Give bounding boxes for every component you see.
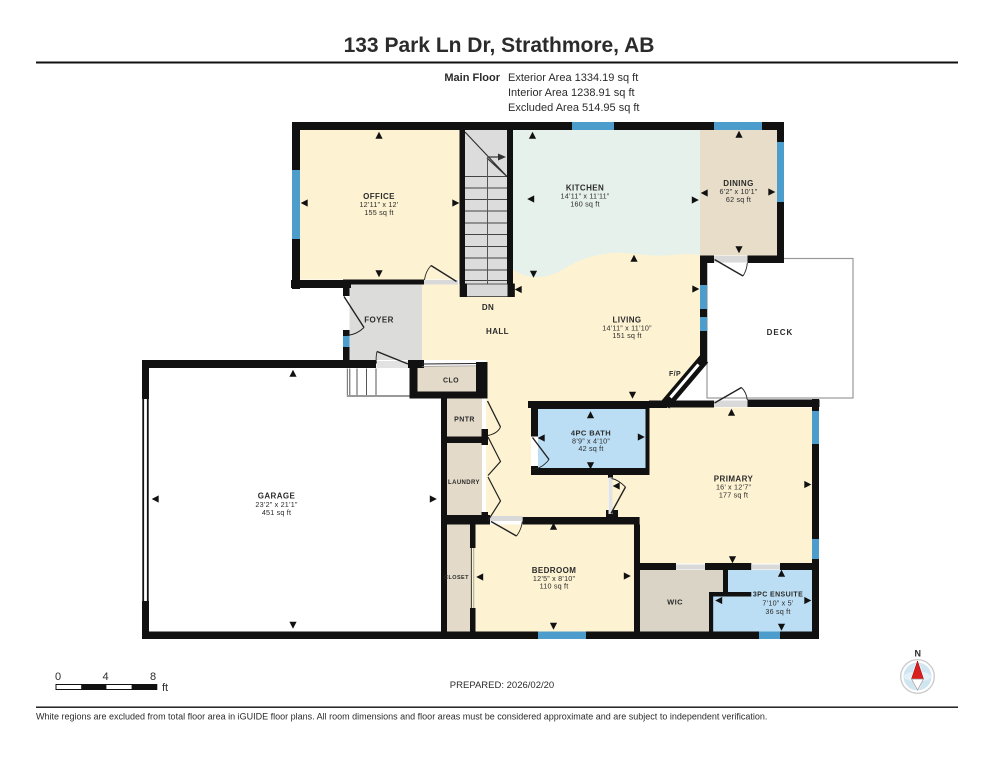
- svg-text:Excluded Area 514.95 sq ft: Excluded Area 514.95 sq ft: [508, 102, 639, 114]
- svg-text:110 sq ft: 110 sq ft: [540, 582, 569, 591]
- svg-text:N: N: [915, 649, 922, 659]
- svg-text:451 sq ft: 451 sq ft: [262, 508, 291, 517]
- svg-text:3PC ENSUITE: 3PC ENSUITE: [753, 592, 803, 599]
- svg-text:Exterior Area 1334.19 sq ft: Exterior Area 1334.19 sq ft: [508, 72, 638, 84]
- svg-text:DN: DN: [482, 303, 494, 312]
- svg-text:F/P: F/P: [669, 371, 681, 378]
- svg-text:PREPARED: 2026/02/20: PREPARED: 2026/02/20: [450, 680, 554, 691]
- svg-text:8: 8: [150, 671, 156, 683]
- svg-text:4: 4: [102, 671, 108, 683]
- svg-text:42 sq ft: 42 sq ft: [578, 444, 603, 453]
- svg-text:Interior Area 1238.91 sq ft: Interior Area 1238.91 sq ft: [508, 87, 635, 99]
- svg-text:36 sq ft: 36 sq ft: [765, 607, 790, 616]
- svg-text:160 sq ft: 160 sq ft: [570, 200, 599, 209]
- svg-text:CLO: CLO: [443, 378, 459, 385]
- svg-text:HALL: HALL: [486, 327, 509, 336]
- svg-text:WIC: WIC: [667, 598, 683, 607]
- svg-text:FOYER: FOYER: [364, 316, 394, 325]
- svg-text:White regions are excluded fro: White regions are excluded from total fl…: [36, 712, 767, 722]
- svg-text:CLOSET: CLOSET: [444, 575, 469, 581]
- svg-text:62 sq ft: 62 sq ft: [726, 195, 751, 204]
- svg-text:0: 0: [55, 671, 61, 683]
- svg-text:PNTR: PNTR: [454, 417, 475, 424]
- svg-text:ft: ft: [162, 682, 168, 694]
- svg-text:DECK: DECK: [767, 328, 794, 337]
- svg-text:Main Floor: Main Floor: [444, 72, 500, 84]
- svg-text:133 Park Ln Dr, Strathmore, AB: 133 Park Ln Dr, Strathmore, AB: [344, 34, 655, 57]
- svg-text:151 sq ft: 151 sq ft: [612, 331, 641, 340]
- svg-text:155 sq ft: 155 sq ft: [364, 208, 393, 217]
- svg-text:177 sq ft: 177 sq ft: [719, 491, 748, 500]
- svg-text:LAUNDRY: LAUNDRY: [448, 480, 480, 486]
